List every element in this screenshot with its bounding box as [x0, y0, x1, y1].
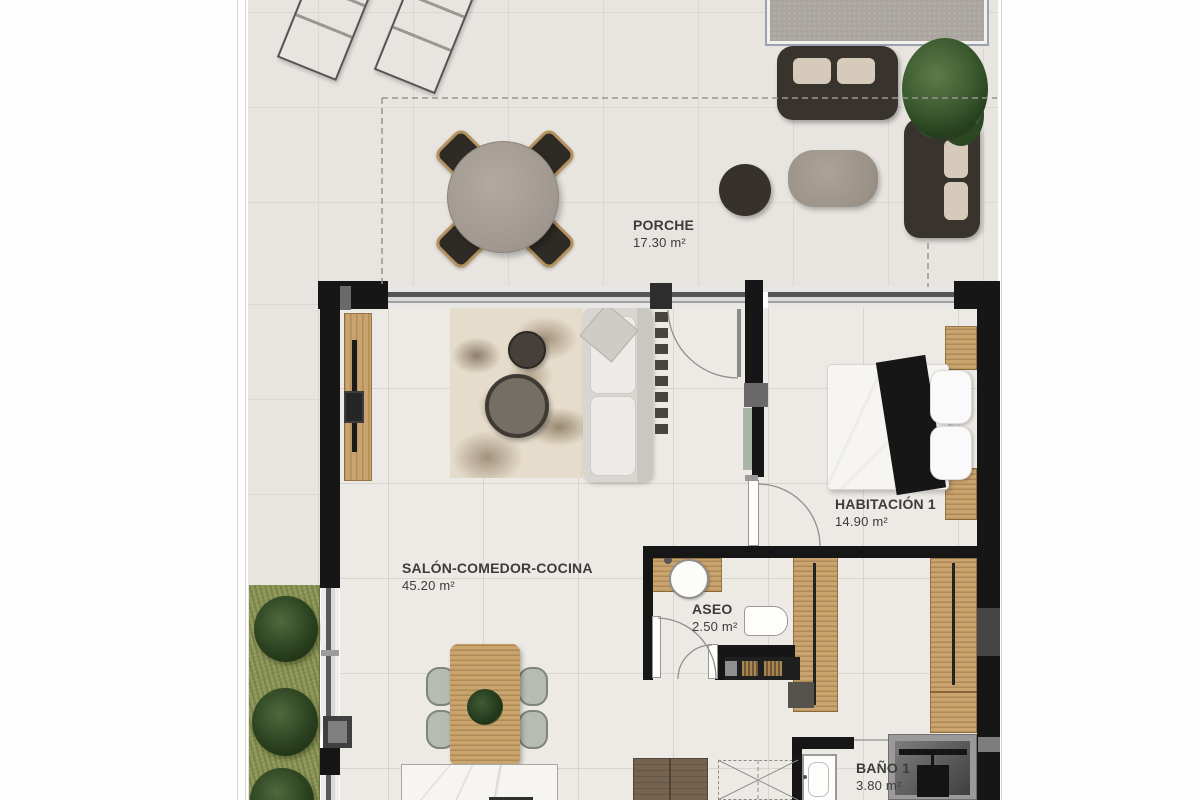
wall-niche-squares	[655, 312, 668, 440]
wall-pillar	[788, 682, 814, 708]
wall-segment	[643, 546, 980, 558]
wall-segment	[792, 737, 854, 749]
pillow	[930, 426, 972, 480]
room-name: ASEO	[692, 601, 737, 618]
built-in-wardrobe	[930, 558, 977, 733]
wall-segment	[320, 283, 340, 588]
toilet	[744, 606, 788, 636]
washbasin	[669, 559, 709, 599]
kitchen-island	[401, 764, 558, 800]
table-plant	[467, 689, 503, 725]
ottoman	[719, 164, 771, 216]
floor-plan-canvas: PORCHE 17.30 m² SALÓN-COMEDOR-COCINA 45.…	[0, 0, 1200, 800]
wardrobe-rail	[952, 563, 955, 685]
room-area: 2.50 m²	[692, 618, 737, 635]
plan-border-line	[237, 0, 238, 800]
room-area: 45.20 m²	[402, 577, 593, 594]
sofa	[583, 306, 652, 482]
door-panel-inset	[808, 762, 829, 797]
room-name: BAÑO 1	[856, 760, 910, 777]
bathroom-door-panel	[802, 754, 837, 800]
coffee-table	[788, 150, 878, 207]
wardrobe-divider	[930, 691, 977, 693]
window	[388, 286, 745, 308]
sofa-cushion	[793, 58, 831, 84]
media-shelf	[344, 391, 364, 423]
room-name: HABITACIÓN 1	[835, 496, 936, 513]
window	[768, 286, 956, 308]
sofa-cushion	[837, 58, 875, 84]
wardrobe-outline	[718, 760, 798, 800]
entrance-door-leaf	[737, 309, 741, 377]
round-side-table-small	[508, 331, 546, 369]
room-label-bano-1: BAÑO 1 3.80 m²	[856, 760, 910, 794]
wall-pillar	[978, 737, 1000, 752]
bush	[254, 596, 318, 662]
room-area: 3.80 m²	[856, 777, 910, 794]
hob	[764, 661, 782, 676]
hall-door-leaf	[708, 644, 718, 679]
sofa-cushion	[944, 140, 968, 178]
room-label-habitacion-1: HABITACIÓN 1 14.90 m²	[835, 496, 936, 530]
outdoor-sofa-horizontal	[777, 46, 898, 120]
wall-segment	[320, 748, 340, 775]
wall-segment	[792, 749, 802, 800]
wall-segment	[745, 280, 763, 383]
door-handle	[803, 775, 807, 779]
potted-plant	[902, 38, 988, 140]
room-name: SALÓN-COMEDOR-COCINA	[402, 560, 593, 577]
outdoor-round-dining-table	[447, 141, 559, 253]
wall-pillar	[744, 383, 768, 407]
aseo-door-leaf	[652, 616, 661, 678]
round-side-table-large	[485, 374, 549, 438]
bush	[252, 688, 318, 756]
cabinet-divider	[669, 759, 671, 800]
room-area: 14.90 m²	[835, 513, 936, 530]
wall-pillar	[323, 716, 352, 748]
kitchen-cabinet-run	[717, 657, 800, 680]
wall-pillar	[977, 608, 1000, 656]
sofa-back	[637, 306, 652, 482]
pillar-inset	[328, 721, 347, 743]
nightstand	[945, 326, 977, 370]
hob	[742, 661, 758, 676]
bedroom-door-leaf	[748, 480, 759, 546]
tv-unit	[344, 313, 372, 481]
window-mullion	[321, 650, 339, 656]
shower-head	[917, 765, 949, 797]
plan-border-line	[1001, 0, 1002, 800]
plan-border-line	[245, 0, 246, 800]
wall-pillar	[650, 283, 672, 309]
room-name: PORCHE	[633, 217, 694, 234]
sofa-cushion	[590, 396, 636, 476]
wall-segment	[977, 283, 1000, 800]
room-label-porche: PORCHE 17.30 m²	[633, 217, 694, 251]
room-label-aseo: ASEO 2.50 m²	[692, 601, 737, 635]
room-area: 17.30 m²	[633, 234, 694, 251]
pillow	[930, 370, 972, 424]
window	[321, 775, 339, 800]
wall-segment	[715, 645, 795, 657]
sofa-cushion	[944, 182, 968, 220]
dining-chair	[518, 667, 548, 706]
wall-segment	[752, 407, 764, 477]
sideboard-cabinet	[633, 758, 708, 800]
room-label-salon: SALÓN-COMEDOR-COCINA 45.20 m²	[402, 560, 593, 594]
dining-chair	[518, 710, 548, 749]
